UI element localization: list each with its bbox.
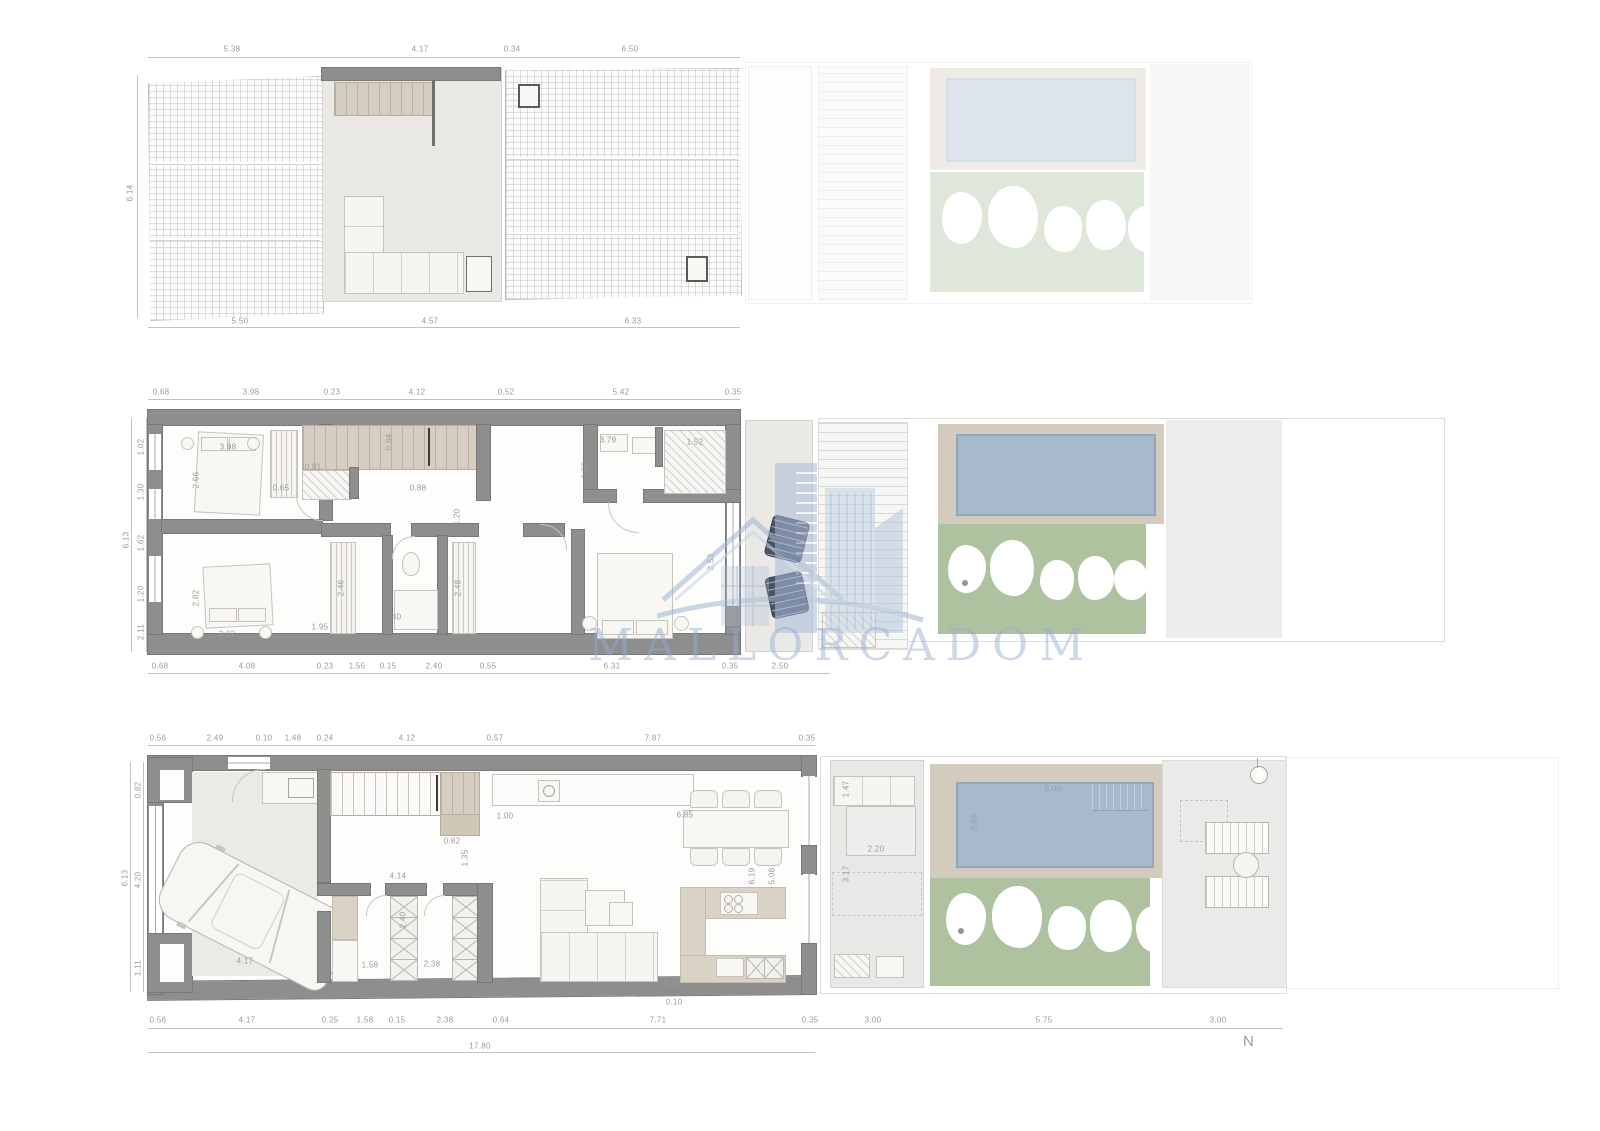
wall (318, 884, 370, 895)
appliance (452, 959, 480, 981)
dim-label: 6.19 (748, 868, 757, 885)
wall (802, 846, 816, 874)
dim-line (143, 762, 144, 992)
side-table (466, 256, 492, 292)
nightstand (247, 437, 260, 450)
dim-label: 1.20 (453, 509, 462, 526)
dim-label: 4.08 (239, 662, 256, 671)
dim-label: 0.84 (385, 434, 394, 451)
dim-label: 4.17 (412, 45, 429, 54)
dim-line (148, 399, 740, 400)
dim-label: 3.17 (842, 866, 851, 883)
stepping-stone (988, 186, 1038, 248)
dim-label: 5.00 (1045, 785, 1062, 794)
dim-label: 0.24 (317, 734, 334, 743)
dim-label: 6.14 (126, 185, 135, 202)
dim-line (148, 327, 740, 328)
wall (572, 530, 584, 634)
dim-line (148, 57, 740, 58)
dim-label: 3.98 (243, 388, 260, 397)
window (149, 434, 161, 470)
burner (734, 904, 743, 913)
roof-ridge (507, 157, 738, 159)
dim-label: 2.40 (385, 613, 402, 622)
stepping-stone (1078, 556, 1114, 600)
stair-wall (432, 80, 435, 146)
pergola-slats (818, 66, 908, 300)
dim-label: 4.12 (409, 388, 426, 397)
dim-label: 2.48 (454, 580, 463, 597)
dim-label: 6.85 (677, 811, 694, 820)
dim-label: 2.38 (437, 1016, 454, 1025)
dim-label: 0.35 (725, 388, 742, 397)
dim-label: 6.33 (625, 317, 642, 326)
sofa-seats (344, 252, 464, 294)
dim-label: 0.23 (317, 662, 334, 671)
dim-label: 4.20 (134, 872, 143, 889)
stepping-stone (1114, 560, 1148, 600)
dim-label: 17.80 (469, 1042, 491, 1051)
dim-label: 0.82 (134, 782, 143, 799)
dim-label: 4.17 (237, 957, 254, 966)
dim-label: 3.98 (220, 443, 237, 452)
dim-label: 1.52 (581, 462, 590, 479)
outdoor-shower (1250, 766, 1268, 784)
chimney (686, 256, 708, 282)
pool (956, 434, 1156, 516)
dim-label: 1.02 (137, 439, 146, 456)
dim-label: 0.25 (322, 1016, 339, 1025)
north-indicator: N (1243, 1033, 1254, 1050)
nightstand (181, 437, 194, 450)
pillow (209, 608, 237, 622)
sun-lounger (1205, 822, 1269, 854)
stair-landing (440, 814, 480, 836)
dining-table (683, 810, 789, 848)
wall (477, 425, 490, 500)
appliance (390, 938, 418, 960)
dim-line (148, 1028, 1283, 1029)
sun-lounger (1205, 876, 1269, 908)
appliance (452, 938, 480, 960)
dim-label: 5.42 (613, 388, 630, 397)
dim-label: 0.56 (150, 1016, 167, 1025)
dining-chair (690, 848, 718, 866)
sliding-door (803, 776, 815, 846)
stepping-stone (1044, 206, 1082, 252)
dim-label: 2.50 (970, 814, 979, 831)
watermark-logo (655, 448, 925, 648)
dim-label: 6.50 (622, 45, 639, 54)
dim-label: 0.91 (305, 463, 322, 472)
dim-label: 0.57 (487, 734, 504, 743)
coffee-table (609, 902, 633, 926)
dim-label: 2.49 (207, 734, 224, 743)
dim-label: 0.56 (150, 734, 167, 743)
appliance (746, 957, 766, 979)
dim-label: 1.11 (134, 960, 143, 976)
stepping-stone (992, 886, 1042, 948)
dim-line (148, 1052, 815, 1053)
stepping-stone (990, 540, 1034, 596)
dim-label: 0.82 (444, 837, 461, 846)
rear-patio (1162, 760, 1286, 988)
dim-label: 5.38 (224, 45, 241, 54)
dim-line (146, 418, 147, 652)
dim-label: 0.68 (152, 662, 169, 671)
wall (318, 770, 330, 882)
stair-arrow (436, 775, 438, 811)
dim-label: 1.95 (312, 623, 329, 632)
nightstand (259, 626, 272, 639)
wall (162, 520, 322, 533)
burner (734, 895, 743, 904)
dim-label: 1.55 (349, 662, 366, 671)
shower-stem (1257, 758, 1258, 768)
dim-label: 0.55 (480, 662, 497, 671)
appliance (452, 917, 480, 939)
dim-label: 6.10 (664, 980, 681, 989)
dim-label: 5.50 (232, 317, 249, 326)
dim-label: 0.15 (380, 662, 397, 671)
dim-label: 0.64 (493, 1016, 510, 1025)
dim-label: 2.40 (399, 912, 408, 929)
watermark-text: MALLORCADOM (588, 620, 1095, 671)
roof-ridge (507, 232, 738, 234)
wall (802, 756, 816, 776)
wall (386, 884, 426, 895)
wall (148, 410, 740, 425)
dim-label: 2.66 (192, 472, 201, 489)
dining-chair (722, 848, 750, 866)
laundry-counter (332, 896, 358, 940)
stair-run (330, 772, 442, 816)
wall (350, 468, 358, 498)
garden-dot (958, 928, 964, 934)
terrace-below (748, 66, 812, 300)
dim-line (148, 673, 830, 674)
floor-plan-sheet: 5.38 4.17 0.34 6.50 5.50 4.57 6.33 6.14 … (0, 0, 1600, 1131)
utility-sink (288, 778, 314, 798)
dim-label: 2.38 (424, 960, 441, 969)
chimney (518, 84, 540, 108)
dim-line (137, 75, 138, 318)
dim-label: 0.35 (799, 734, 816, 743)
dim-label: 3.02 (219, 630, 236, 639)
window (149, 489, 161, 519)
wall (318, 912, 330, 982)
dim-label: 0.23 (324, 388, 341, 397)
roof-tiles-left (148, 76, 324, 321)
roof-ridge (150, 162, 320, 164)
dim-label: 1.30 (137, 484, 146, 501)
burner (724, 904, 733, 913)
dim-label: 7.87 (645, 734, 662, 743)
wall (478, 884, 492, 982)
entry-door (228, 757, 270, 769)
dim-label: 3.00 (1210, 1016, 1227, 1025)
dim-label: 0.68 (153, 388, 170, 397)
roof-ridge (150, 238, 320, 240)
garden-dot (962, 580, 968, 586)
neighbor-patio (1166, 420, 1282, 638)
dim-label: 2.82 (192, 590, 201, 607)
dim-label: 1.58 (357, 1016, 374, 1025)
island-sink (716, 958, 744, 977)
wall (438, 536, 447, 634)
dining-chair (754, 848, 782, 866)
stepping-stone (1090, 900, 1132, 952)
dim-label: 1.35 (461, 850, 470, 867)
pier-core (160, 770, 184, 800)
dim-label: 0.65 (273, 484, 290, 493)
stepping-stone (1048, 906, 1086, 950)
laundry-cabinet (332, 940, 358, 982)
patio-table (1233, 852, 1259, 878)
dim-line (148, 745, 815, 746)
dim-label: 1.58 (362, 961, 379, 970)
dim-label: 5.75 (1036, 1016, 1053, 1025)
sliding-door (803, 874, 815, 944)
window (149, 556, 161, 602)
neighbor-plot (1285, 757, 1559, 989)
kitchen-counter (492, 774, 694, 806)
shower-tray (394, 590, 438, 630)
appliance (764, 957, 784, 979)
sofa-left-arm (344, 196, 384, 258)
dim-label: 3.00 (865, 1016, 882, 1025)
wall (584, 490, 616, 502)
dim-label: 5.08 (768, 868, 777, 885)
burner (724, 895, 733, 904)
dim-label: 1.47 (842, 781, 851, 798)
dim-label: 1.48 (285, 734, 302, 743)
dim-label: 7.71 (650, 1016, 667, 1025)
dim-label: 6.13 (121, 870, 130, 887)
neighbor-patio (1150, 64, 1250, 300)
dim-label: 2.40 (426, 662, 443, 671)
wall (412, 524, 478, 536)
terrace-parapet (322, 68, 500, 80)
dim-label: 4.12 (399, 734, 416, 743)
dim-label: 1.00 (497, 812, 514, 821)
stair-run (334, 82, 434, 116)
dim-line (131, 418, 132, 652)
dim-label: 4.57 (422, 317, 439, 326)
stepping-stone (1040, 560, 1074, 600)
dim-label: 3.79 (600, 436, 617, 445)
stair-upper (440, 772, 480, 816)
dim-label: 4.17 (239, 1016, 256, 1025)
dim-label: 0.88 (410, 484, 427, 493)
sofa-seats (540, 932, 658, 982)
dining-chair (754, 790, 782, 808)
dim-label: 2.11 (137, 624, 146, 640)
dim-label: 0.34 (504, 45, 521, 54)
sink-bowl (543, 785, 555, 797)
dim-label: 2.20 (868, 845, 885, 854)
stepping-stone (1086, 200, 1126, 250)
dim-label: 2.46 (337, 580, 346, 597)
wall (322, 524, 390, 536)
dim-label: 1.20 (137, 586, 146, 603)
dim-label: 0.15 (389, 1016, 406, 1025)
appliance (452, 896, 480, 918)
appliance (390, 959, 418, 981)
pool (946, 78, 1136, 162)
wall (802, 944, 816, 994)
dim-label: 4.14 (390, 872, 407, 881)
dim-label: 0.10 (666, 998, 683, 1007)
dining-chair (722, 790, 750, 808)
dim-line (130, 762, 131, 992)
dining-chair (690, 790, 718, 808)
dim-label: 1.62 (137, 535, 146, 552)
dim-label: 0.52 (498, 388, 515, 397)
dim-label: 6.13 (122, 532, 131, 549)
dim-label: 1.52 (687, 438, 704, 447)
pillow (238, 608, 266, 622)
pool-steps (1092, 784, 1148, 811)
stair-arrow (428, 428, 430, 466)
nightstand (191, 626, 204, 639)
dim-label: 0.35 (802, 1016, 819, 1025)
dim-label: 0.10 (256, 734, 273, 743)
